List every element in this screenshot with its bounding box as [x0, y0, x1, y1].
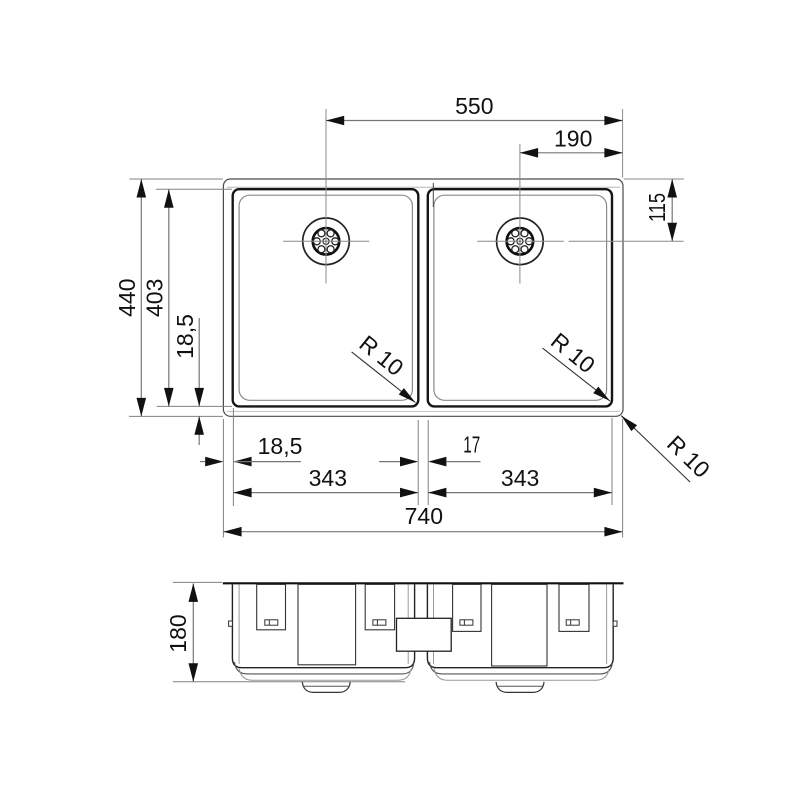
svg-text:740: 740 — [405, 503, 443, 529]
svg-text:343: 343 — [309, 465, 347, 491]
svg-text:180: 180 — [165, 614, 191, 652]
svg-text:403: 403 — [141, 279, 167, 317]
svg-text:18,5: 18,5 — [258, 433, 303, 459]
svg-text:440: 440 — [114, 279, 140, 317]
svg-text:550: 550 — [455, 93, 493, 119]
svg-text:190: 190 — [554, 125, 592, 151]
svg-text:115: 115 — [644, 193, 670, 222]
svg-text:343: 343 — [501, 465, 539, 491]
svg-text:18,5: 18,5 — [172, 314, 198, 359]
svg-text:17: 17 — [463, 432, 480, 458]
